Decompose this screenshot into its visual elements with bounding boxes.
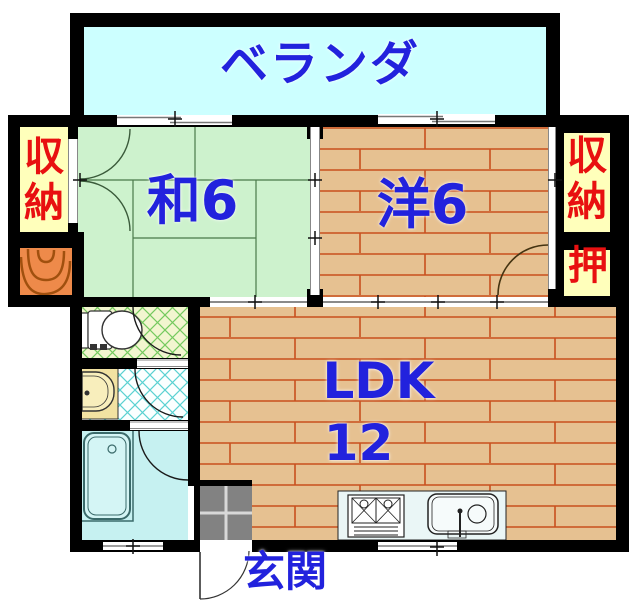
storage-left-label: 収納 (20, 134, 68, 226)
entrance-tile (200, 486, 252, 540)
ldk-label: LDK (306, 356, 451, 406)
storage-right-label: 収納 (563, 133, 611, 225)
porch-box (20, 248, 72, 297)
floorplan: ベランダ 和6 洋6 LDK 12 玄関 収納 収納 押 (0, 0, 630, 600)
bathtub-fixture (82, 431, 133, 521)
toilet-fixture (80, 311, 142, 350)
kitchen-sink-icon (428, 494, 498, 538)
japanese-room-label: 和6 (130, 174, 255, 228)
kitchen-counter (338, 491, 506, 540)
veranda-label: ベランダ (190, 40, 450, 88)
gas-stove-icon (348, 495, 404, 537)
ldk-size-label: 12 (296, 418, 421, 468)
entrance-label: 玄関 (215, 551, 355, 593)
closet-label: 押 (565, 246, 611, 286)
western-room-label: 洋6 (360, 178, 485, 232)
washbasin-fixture (78, 366, 118, 419)
